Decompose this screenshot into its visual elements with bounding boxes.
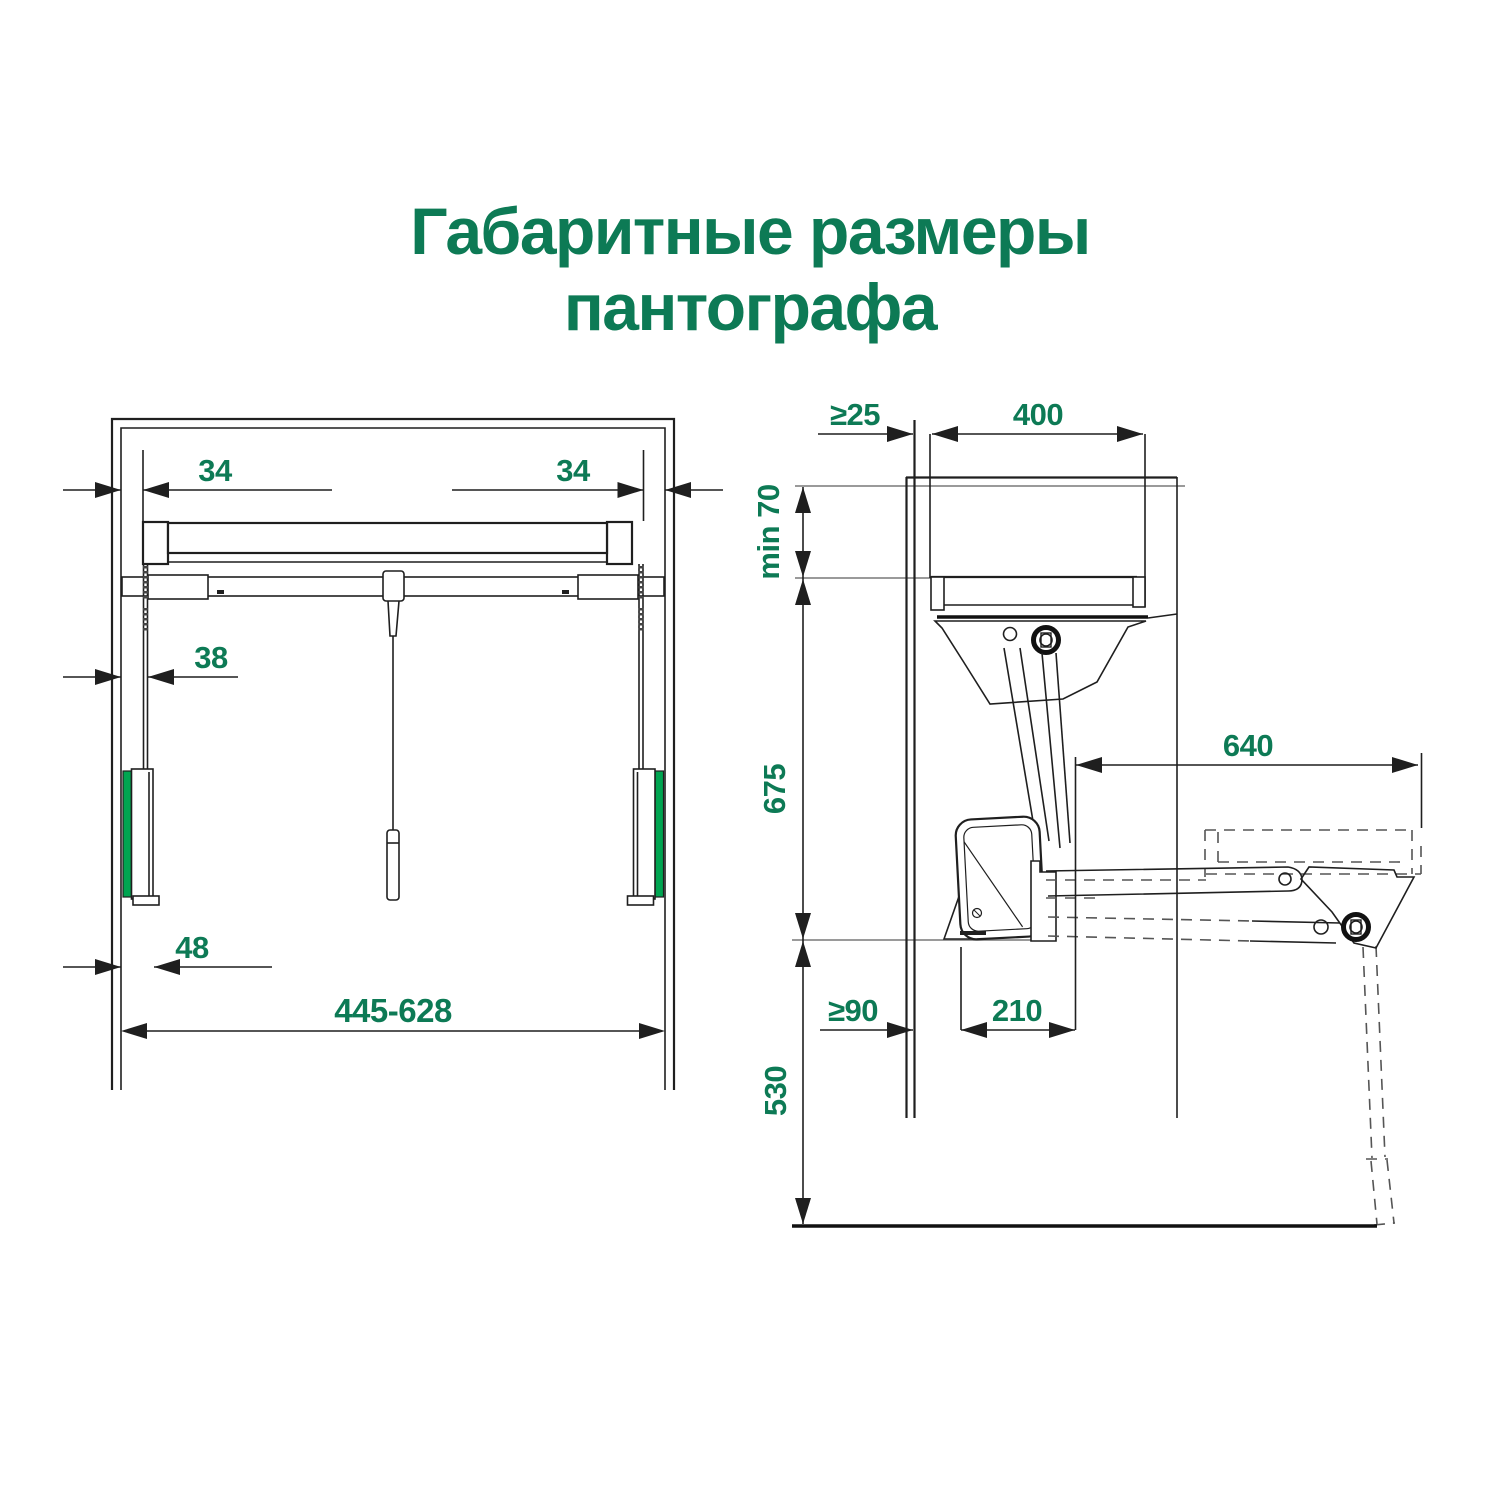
page-title: Габаритные размеры пантографа xyxy=(410,194,1089,344)
dim-label-210: 210 xyxy=(992,993,1042,1028)
dim-label-34-left: 34 xyxy=(198,453,233,488)
dim-label-34-right: 34 xyxy=(556,453,591,488)
unit-label-strip xyxy=(960,931,986,935)
lower-pivot xyxy=(1344,915,1369,940)
dim-shoe-offset: 48 xyxy=(63,930,272,975)
basket-bracket xyxy=(1301,867,1414,948)
dim-rail-offset-right: 34 xyxy=(452,450,723,521)
pull-handle xyxy=(387,830,399,900)
dim-bracket-offset: 38 xyxy=(63,640,238,685)
cabinet-box-shelf xyxy=(930,434,1177,618)
diagram-page: Габаритные размеры пантографа xyxy=(0,0,1500,1499)
dim-label-48: 48 xyxy=(175,930,209,965)
lift-unit xyxy=(944,816,1056,941)
pantograph-dimension-drawing: Габаритные размеры пантографа xyxy=(0,0,1500,1499)
side-view: ≥25 400 min 70 675 530 640 xyxy=(751,397,1422,1226)
dim-vertical-chain: min 70 675 530 xyxy=(751,484,811,1224)
dim-label-530: 530 xyxy=(758,1066,793,1116)
title-line-1: Габаритные размеры xyxy=(410,194,1089,268)
dim-front-clearance: ≥90 xyxy=(820,993,913,1038)
handle-rod-dashed xyxy=(1363,946,1395,1225)
dim-label-min70: min 70 xyxy=(751,484,786,579)
extended-arm xyxy=(1046,867,1414,948)
dim-label-675: 675 xyxy=(757,764,792,814)
upper-pivot xyxy=(1034,628,1059,653)
dim-label-width-range: 445-628 xyxy=(334,992,452,1029)
dim-unit-depth: 210 xyxy=(961,993,1075,1038)
dim-label-38: 38 xyxy=(194,640,228,675)
lowered-position-dashed xyxy=(1046,830,1421,1225)
dim-cabinet-depth: 400 xyxy=(932,397,1143,442)
crossbar xyxy=(143,522,632,564)
dim-label-ge90: ≥90 xyxy=(828,993,878,1028)
mount-bracket xyxy=(935,621,1146,704)
basket-clamp xyxy=(1031,861,1056,941)
pull-handle-assembly xyxy=(383,571,404,900)
dim-rail-offset-left: 34 xyxy=(63,450,332,521)
dim-label-400: 400 xyxy=(1013,397,1063,432)
dim-extension-reach: 640 xyxy=(1076,728,1418,773)
arm-hole xyxy=(1004,628,1017,641)
dim-wall-clearance: ≥25 xyxy=(818,397,913,442)
dim-label-ge25: ≥25 xyxy=(830,397,880,432)
green-pad-right xyxy=(655,771,664,897)
front-view: 34 34 38 48 xyxy=(63,419,723,1090)
title-line-2: пантографа xyxy=(564,270,939,344)
dim-width-range: 445-628 xyxy=(121,992,665,1039)
dim-label-640: 640 xyxy=(1223,728,1273,763)
green-pad-left xyxy=(123,771,132,897)
